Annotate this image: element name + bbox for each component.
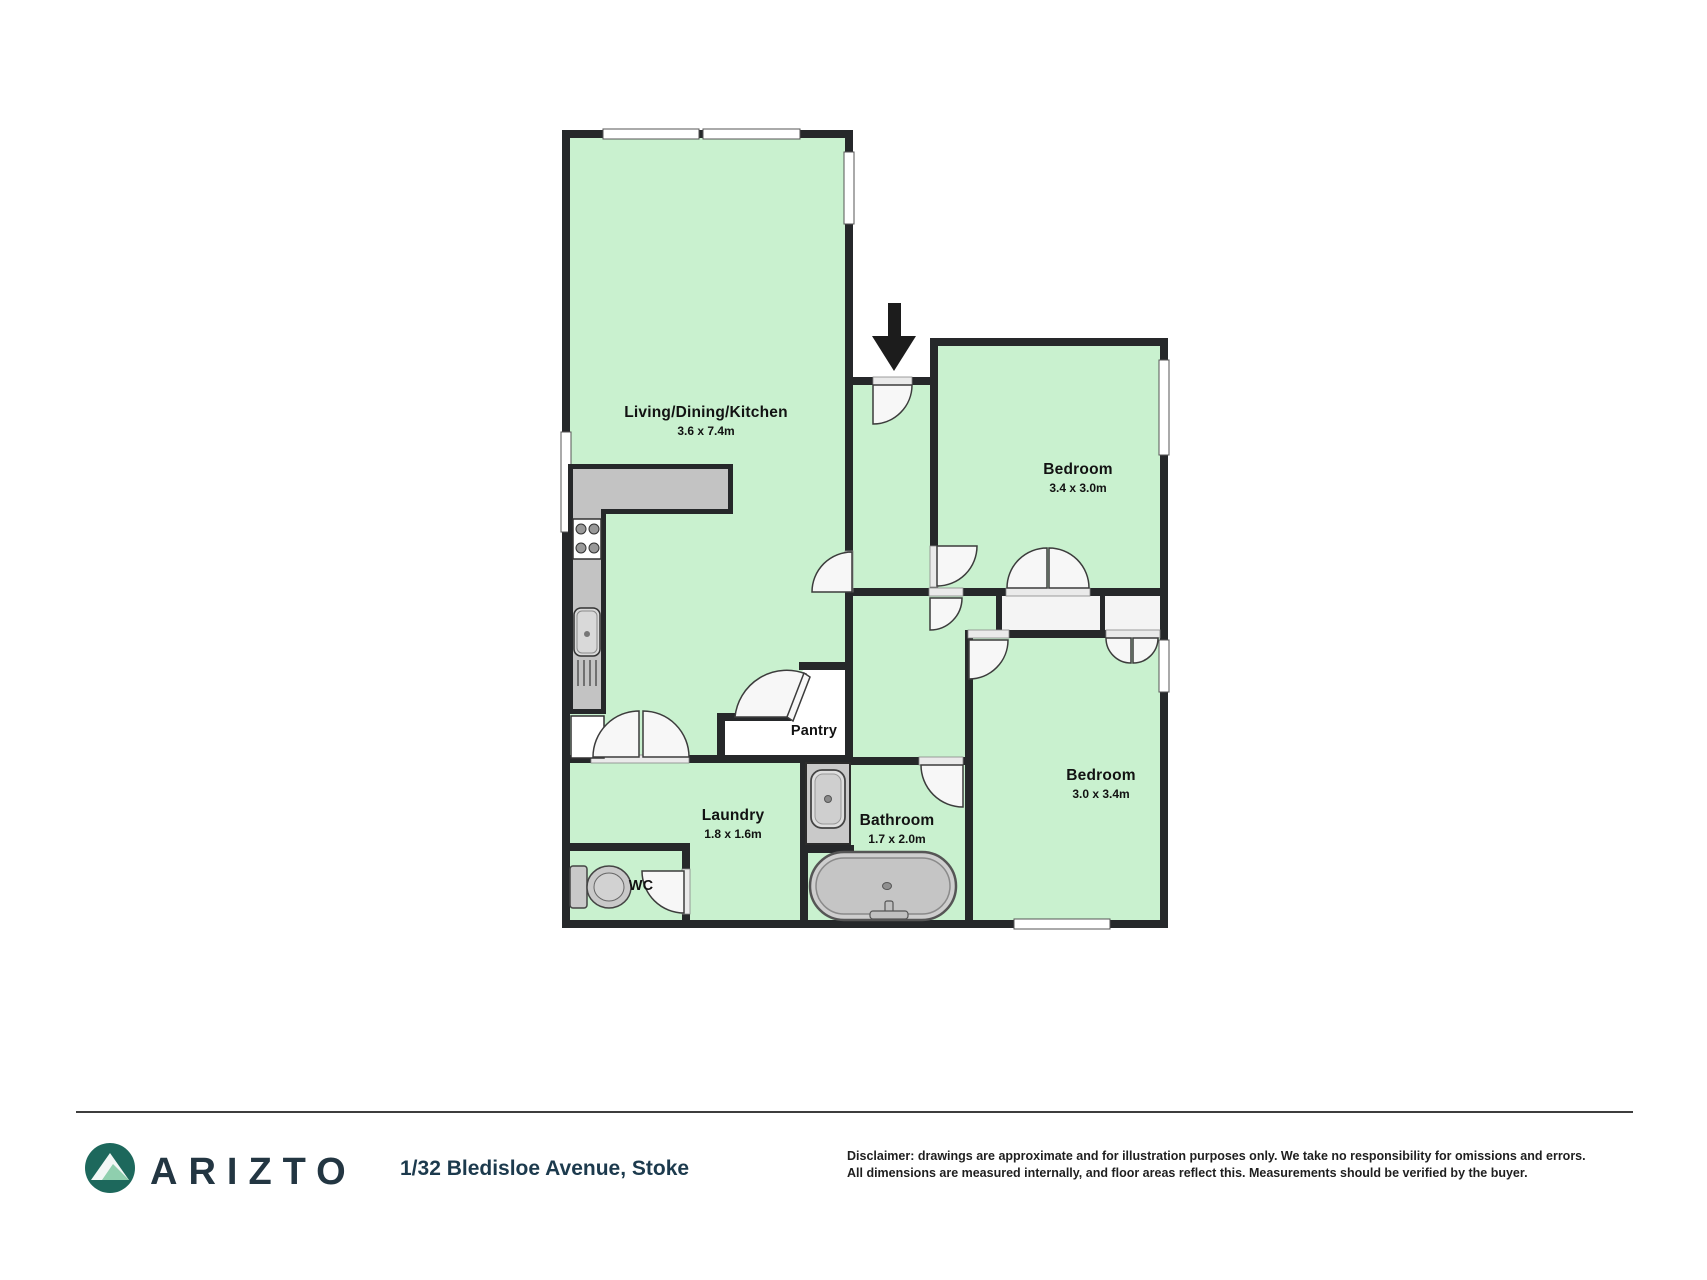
door-leaf xyxy=(919,757,963,765)
hall-floor-lower xyxy=(852,630,965,757)
floors-layer xyxy=(570,138,1160,920)
wall xyxy=(562,843,690,851)
footer-divider xyxy=(76,1111,1633,1113)
window xyxy=(703,129,800,139)
property-address: 1/32 Bledisloe Avenue, Stoke xyxy=(400,1157,689,1181)
mountain-logo-icon xyxy=(84,1142,136,1194)
window xyxy=(1014,919,1110,929)
wardrobe-cell-bedroom2 xyxy=(1105,596,1160,630)
entry-arrow-head xyxy=(872,336,916,371)
wall xyxy=(930,338,1168,346)
toilet-icon xyxy=(570,866,631,908)
window xyxy=(603,129,699,139)
kitchen-sink-icon xyxy=(574,608,600,656)
stove-icon xyxy=(573,519,601,559)
window xyxy=(844,152,854,224)
entry-arrow-icon xyxy=(872,303,916,371)
wall xyxy=(799,662,852,670)
hall-floor-mid xyxy=(852,596,996,630)
brand-wordmark: ARIZTO xyxy=(150,1146,357,1198)
door-leaf xyxy=(968,630,1009,638)
wall xyxy=(996,596,1002,630)
wardrobe-cell-bedroom1 xyxy=(1002,596,1100,630)
door-leaf xyxy=(929,588,963,596)
disclaimer-line-1: Disclaimer: drawings are approximate and… xyxy=(847,1148,1586,1165)
floorplan xyxy=(0,0,1707,1280)
wall xyxy=(1100,596,1105,630)
door-leaf xyxy=(1106,630,1160,638)
entry-arrow-shaft xyxy=(888,303,901,336)
wardrobe-cells xyxy=(1002,596,1160,630)
floorplan-page: Living/Dining/Kitchen 3.6 x 7.4m Bedroom… xyxy=(0,0,1707,1280)
counter-side xyxy=(573,469,601,709)
window xyxy=(1159,360,1169,455)
bedroom2-floor xyxy=(973,638,1160,920)
disclaimer-line-2: All dimensions are measured internally, … xyxy=(847,1165,1586,1182)
bath-icon xyxy=(810,852,956,920)
vanity-sink-icon xyxy=(806,763,850,844)
door-leaf xyxy=(873,377,912,385)
door-leaf xyxy=(1006,588,1090,596)
window xyxy=(1159,640,1169,692)
disclaimer-text: Disclaimer: drawings are approximate and… xyxy=(847,1148,1586,1182)
